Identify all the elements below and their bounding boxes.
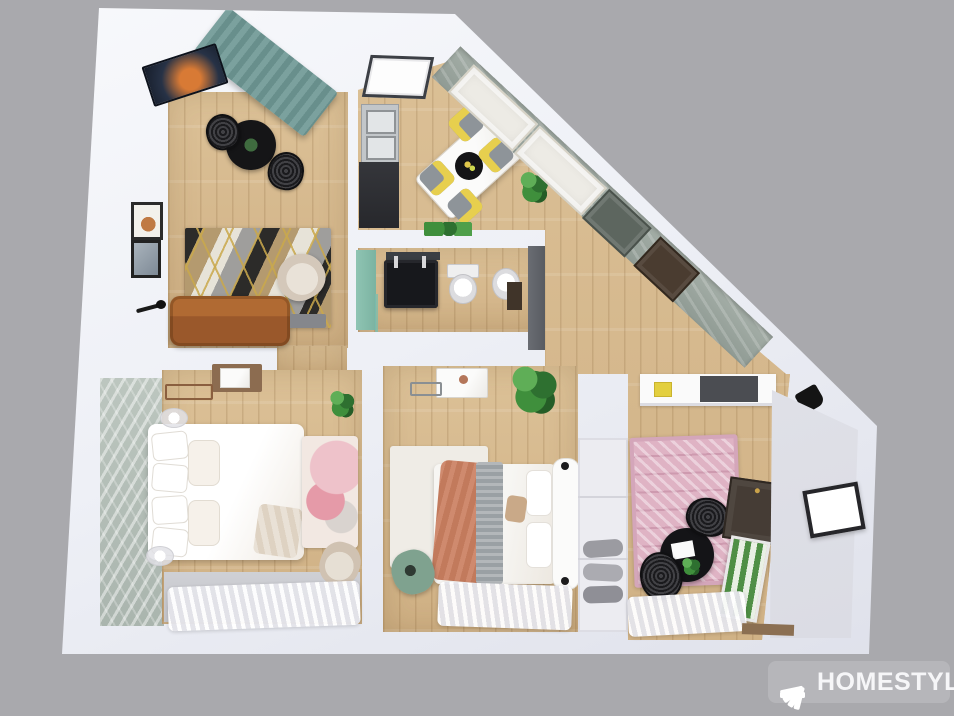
homestyler-watermark[interactable]: HOMESTYLER — [768, 661, 950, 703]
homestyler-fan-icon — [778, 666, 810, 698]
homestyler-label: HOMESTYLER — [817, 670, 954, 695]
wood-threshold — [742, 623, 794, 636]
apartment-walls — [0, 0, 954, 716]
room-balcony — [0, 0, 954, 716]
balcony-floor — [0, 0, 954, 716]
balcony-window — [802, 482, 865, 539]
floorplan-render: HOMESTYLER — [0, 0, 954, 716]
